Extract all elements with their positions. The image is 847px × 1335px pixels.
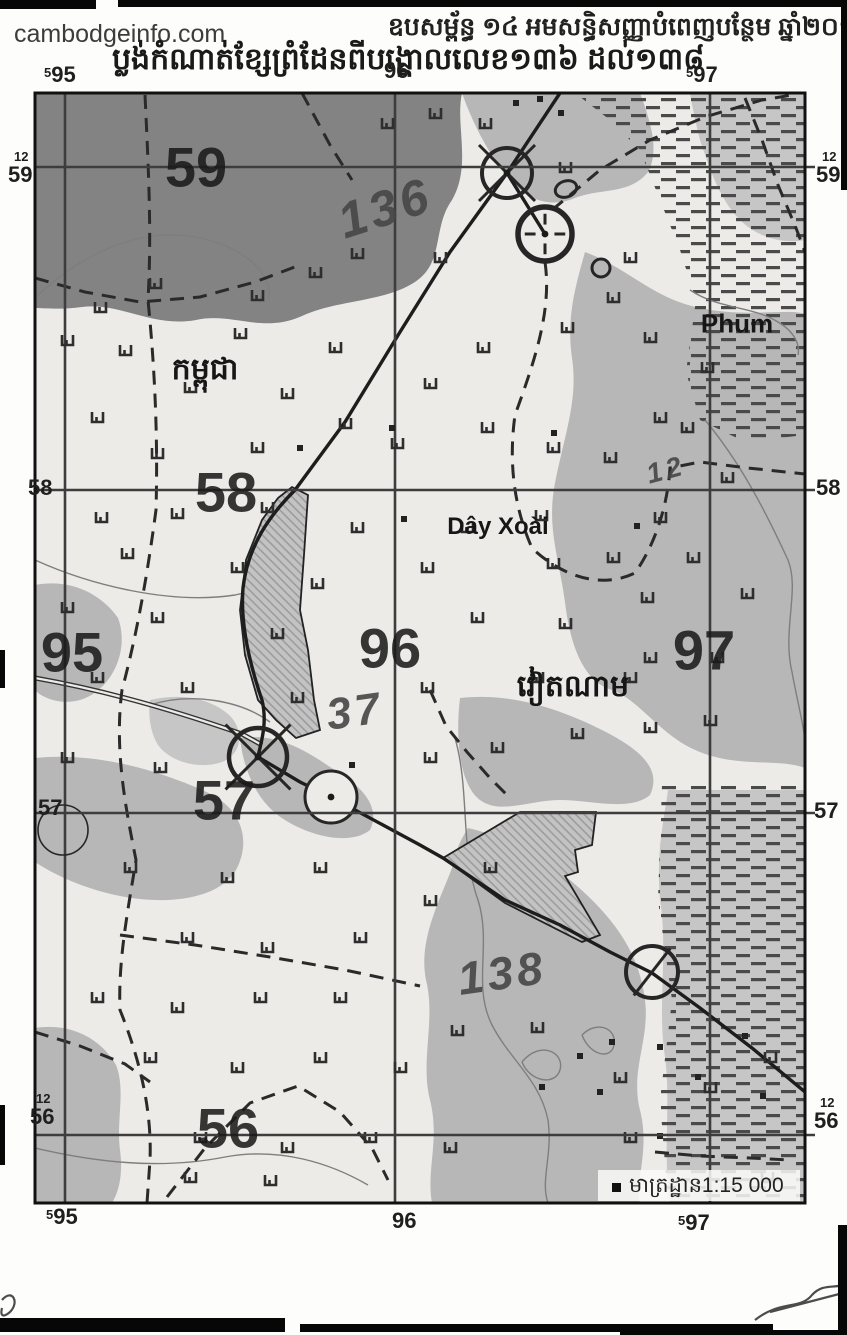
grid-margin-label-left-58: 58 bbox=[28, 477, 52, 499]
tree-dot-icon bbox=[537, 96, 543, 102]
tree-dot-icon bbox=[597, 1089, 603, 1095]
grid-label-main: 57 bbox=[38, 797, 62, 819]
grid-label-main: 57 bbox=[814, 800, 838, 822]
grid-number-97: 97 bbox=[673, 618, 735, 683]
scan-edge-artifact bbox=[0, 1318, 285, 1332]
grid-label-superscript: 5 bbox=[44, 65, 51, 80]
border-pillar-marker-icon bbox=[305, 771, 357, 823]
grid-margin-label-top-96: 96 bbox=[384, 60, 408, 82]
grid-number-57: 57 bbox=[193, 768, 255, 833]
tree-dot-icon bbox=[349, 762, 355, 768]
label-cambodia: កម្ពុជា bbox=[172, 350, 239, 394]
grid-label-main: 59 bbox=[816, 164, 840, 186]
grid-label-main: 56 bbox=[814, 1110, 838, 1132]
grid-number-59: 59 bbox=[165, 135, 227, 200]
tree-dot-icon bbox=[389, 425, 395, 431]
border-pillar-marker-icon bbox=[518, 207, 572, 261]
tree-dot-icon bbox=[577, 1053, 583, 1059]
tree-dot-icon bbox=[609, 1039, 615, 1045]
grid-label-main: 96 bbox=[384, 60, 408, 82]
grid-margin-label-right-59: 1259 bbox=[816, 148, 840, 186]
scan-edge-artifact bbox=[0, 1105, 5, 1165]
scan-edge-artifact bbox=[0, 0, 96, 9]
scanned-border-map-page: cambodgeinfo.com ឧបសម្ព័ន្ធ ១៤ អមសន្ធិសញ… bbox=[0, 0, 847, 1335]
scale-label: មាត្រដ្ឋាន bbox=[629, 1174, 702, 1197]
grid-margin-label-top-97: 597 bbox=[686, 64, 718, 86]
tree-dot-icon bbox=[558, 110, 564, 116]
scale-value: 1:15 000 bbox=[702, 1174, 784, 1197]
grid-number-56: 56 bbox=[197, 1096, 259, 1161]
grid-label-main: 97 bbox=[693, 64, 717, 86]
grid-label-main: 58 bbox=[816, 477, 840, 499]
legend: បង្គោលព្រំដែន ខ្សែព្រំដែនឯកភាព បានផ្ទៀងផ… bbox=[0, 1225, 847, 1320]
tree-dot-icon bbox=[513, 100, 519, 106]
scan-edge-artifact bbox=[620, 1330, 847, 1335]
grid-margin-label-top-95: 595 bbox=[44, 64, 76, 86]
scale-text: មាត្រដ្ឋាន1:15 000 bbox=[629, 1172, 784, 1203]
tree-dot-icon bbox=[742, 1033, 748, 1039]
pillar-number-37: 37 bbox=[323, 683, 386, 740]
grid-number-96: 96 bbox=[359, 616, 421, 681]
grid-label-superscript: 5 bbox=[686, 65, 693, 80]
scan-edge-artifact bbox=[838, 1225, 847, 1335]
tree-dot-icon bbox=[539, 1084, 545, 1090]
grid-number-95: 95 bbox=[41, 620, 103, 685]
scan-edge-artifact bbox=[0, 650, 5, 688]
scale-bar: មាត្រដ្ឋាន1:15 000 bbox=[612, 1172, 784, 1203]
label-phum: Phum bbox=[701, 309, 773, 340]
grid-label-main: 95 bbox=[51, 64, 75, 86]
label-vietnam: វៀតណាម bbox=[517, 667, 629, 711]
scan-edge-artifact bbox=[841, 0, 847, 190]
tree-dot-icon bbox=[634, 523, 640, 529]
grid-margin-label-left-57: 57 bbox=[38, 797, 62, 819]
grid-label-superscript: 5 bbox=[46, 1207, 53, 1222]
grid-margin-label-right-56: 1256 bbox=[814, 1094, 838, 1132]
grid-label-main: 56 bbox=[30, 1106, 54, 1128]
scale-square-icon bbox=[612, 1183, 621, 1192]
grid-margin-label-left-56: 1256 bbox=[30, 1090, 54, 1128]
grid-margin-label-left-59: 1259 bbox=[8, 148, 32, 186]
tree-dot-icon bbox=[657, 1044, 663, 1050]
scan-edge-artifact bbox=[118, 0, 847, 7]
tree-dot-icon bbox=[695, 1074, 701, 1080]
tree-dot-icon bbox=[297, 445, 303, 451]
grid-margin-label-right-58: 58 bbox=[816, 477, 840, 499]
tree-dot-icon bbox=[401, 516, 407, 522]
label-day-xoai: Dây Xoài bbox=[447, 513, 548, 541]
grid-margin-label-right-57: 57 bbox=[814, 800, 838, 822]
tree-dot-icon bbox=[551, 430, 557, 436]
tree-dot-icon bbox=[760, 1093, 766, 1099]
grid-label-main: 59 bbox=[8, 164, 32, 186]
grid-number-58: 58 bbox=[195, 460, 257, 525]
grid-label-main: 58 bbox=[28, 477, 52, 499]
